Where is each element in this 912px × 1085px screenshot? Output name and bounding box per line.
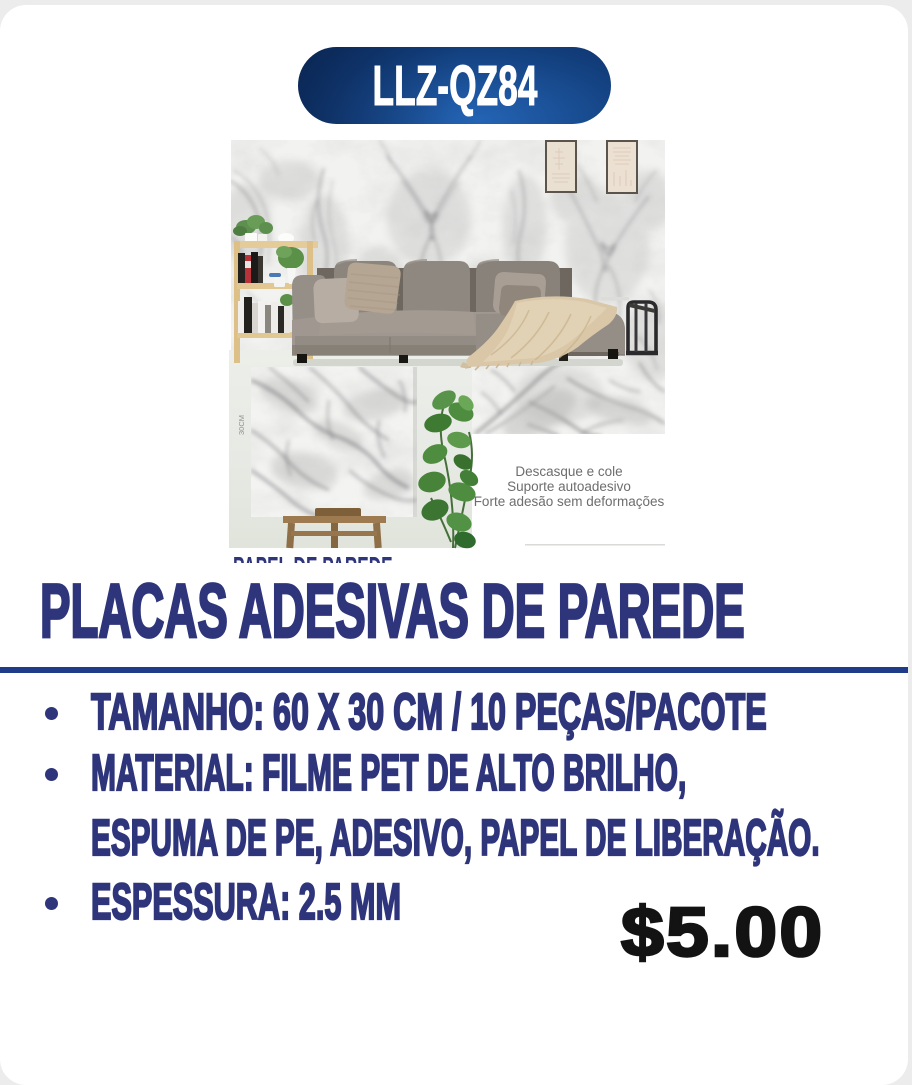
svg-text:Suporte autoadesivo: Suporte autoadesivo bbox=[507, 479, 631, 494]
svg-text:Descasque e cole: Descasque e cole bbox=[515, 464, 622, 479]
svg-text:PAPEL DE PAREDE: PAPEL DE PAREDE bbox=[233, 551, 393, 563]
svg-text:30CM: 30CM bbox=[237, 415, 246, 435]
svg-text:Forte adesão sem deformações: Forte adesão sem deformações bbox=[474, 494, 665, 509]
